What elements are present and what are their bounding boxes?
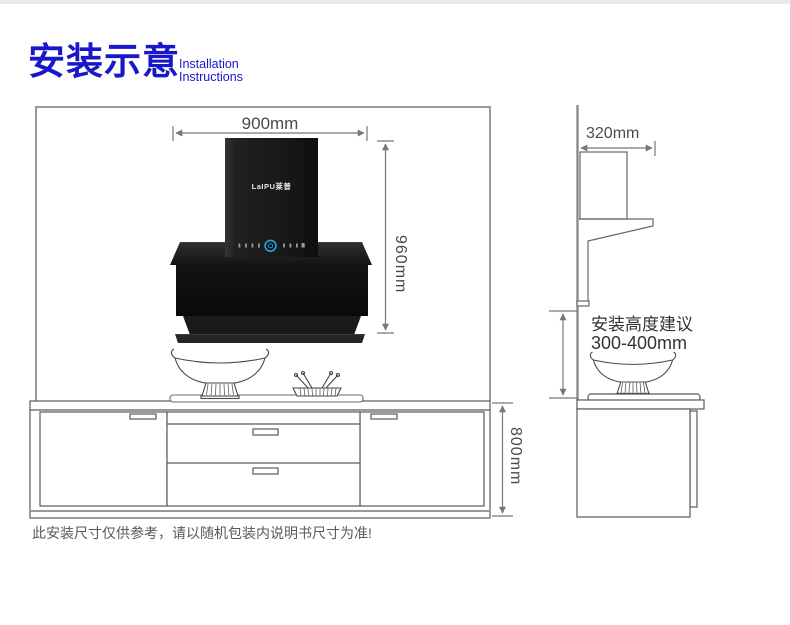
hood-lower-inset	[183, 316, 361, 335]
hood-brand-logo: LaIPU莱普	[225, 181, 318, 192]
front-view	[30, 107, 513, 518]
side-wok	[590, 352, 675, 396]
install-height-advice-line1: 安装高度建议	[591, 310, 693, 335]
side-hood-profile	[577, 152, 653, 306]
left-door-handle	[130, 414, 156, 419]
hood-body	[176, 265, 368, 316]
dim-label-800mm: 800mm	[506, 427, 524, 485]
counter-right-door	[360, 412, 484, 506]
side-counter	[577, 394, 704, 517]
side-cabinet	[577, 409, 690, 517]
footnote-disclaimer: 此安装尺寸仅供参考，请以随机包装内说明书尺寸为准!	[32, 523, 372, 543]
front-wok	[171, 349, 268, 399]
counter-drawer-stack	[167, 412, 360, 506]
range-hood	[170, 138, 372, 343]
front-burner	[293, 372, 341, 397]
drawer-handle-bottom	[253, 468, 278, 474]
dim-label-900mm: 900mm	[220, 114, 320, 134]
install-height-advice-line2: 300-400mm	[591, 333, 687, 354]
counter-left-door	[40, 412, 167, 506]
right-door-handle	[371, 414, 397, 419]
front-counter	[30, 401, 490, 518]
hood-power-button	[265, 240, 276, 251]
installation-instructions-page: { "header": { "title_cn": "安装示意", "subti…	[0, 0, 790, 625]
dim-label-960mm: 960mm	[391, 235, 409, 293]
side-countertop	[577, 400, 704, 409]
dim-label-320mm: 320mm	[586, 125, 639, 143]
hood-bottom-plate	[175, 334, 365, 343]
side-cabinet-back-panel	[690, 411, 697, 507]
dim-install-height	[549, 311, 578, 398]
hood-chimney	[225, 138, 318, 257]
drawer-handle-top	[253, 429, 278, 435]
